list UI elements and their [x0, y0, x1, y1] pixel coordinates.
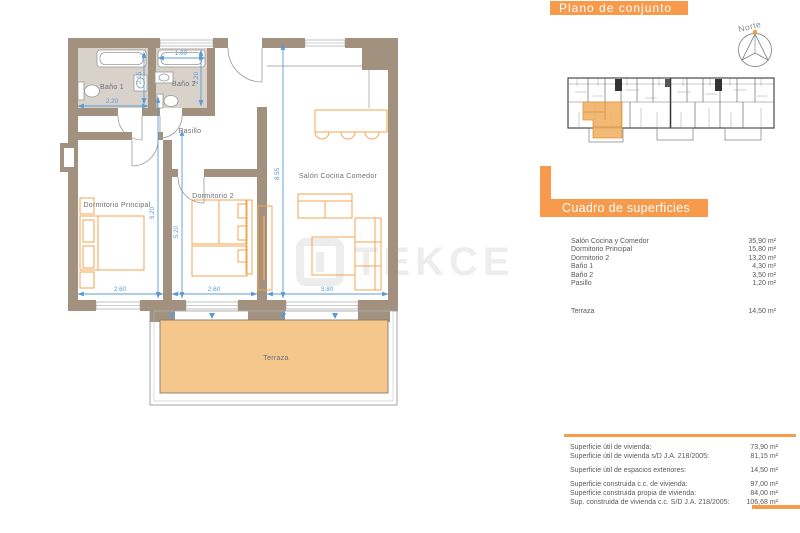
row-value: 97,00 m²: [750, 480, 778, 489]
totals-row: Sup. construida de vivienda c.c. S/D J.A…: [570, 498, 778, 507]
totals-bottom-rule: [752, 505, 800, 509]
terraza-row: Terraza 14,50 m²: [571, 308, 776, 316]
dim-salon-width: 3.80: [321, 286, 334, 293]
row-label: Dormitorio 2: [571, 255, 609, 263]
row-label: Sup. construida de vivienda c.c. S/D J.A…: [570, 498, 730, 507]
surface-table: Salón Cocina y Comedor 35,90 m² Dormitor…: [571, 238, 776, 288]
north-compass: Norte: [722, 14, 786, 72]
table-row: Pasillo 1,20 m²: [571, 280, 776, 288]
nightstand: [80, 272, 94, 288]
north-dot-icon: [753, 30, 757, 34]
totals-row: Superficie construida propia de vivienda…: [570, 489, 778, 498]
overview-plan: [565, 72, 777, 150]
room-label-pasillo: Pasillo: [179, 128, 202, 135]
row-label: Superficie construida c.c. de vivienda:: [570, 480, 688, 489]
row-value: 15,80 m²: [748, 246, 776, 254]
row-label: Superficie útil de vivienda:: [570, 443, 651, 452]
chaise-sofa: [355, 218, 381, 290]
kitchen-counter: [267, 66, 369, 108]
row-label: Superficie construida propia de vivienda…: [570, 489, 696, 498]
dim-d2-height: 5.20: [173, 225, 180, 238]
row-value: 3,50 m²: [752, 272, 776, 280]
totals-row: Superficie útil de vivienda: 73,90 m²: [570, 443, 778, 452]
wall-niche: [64, 148, 74, 167]
table-row: Salón Cocina y Comedor 35,90 m²: [571, 238, 776, 246]
stool: [341, 132, 355, 139]
dim-bano1-width: 2.20: [106, 98, 119, 105]
row-value: 14,50 m²: [750, 466, 778, 475]
room-label-bano2: Baño 2: [172, 81, 196, 88]
row-value: 81,15 m²: [750, 452, 778, 461]
cuadro-de-superficies-header: Cuadro de superficies: [551, 199, 708, 217]
north-label: Norte: [737, 19, 762, 34]
room-label-dormitorio-principal: Dormitorio Principal: [83, 202, 150, 209]
row-label: Baño 2: [571, 272, 593, 280]
row-label: Superficie útil de espacios exteriores:: [570, 466, 686, 475]
table-row: Dormitorio 2 13,20 m²: [571, 255, 776, 263]
row-label: Salón Cocina y Comedor: [571, 238, 649, 246]
totals-row: Superficie construida c.c. de vivienda: …: [570, 480, 778, 489]
floor-plan: 2.20 1.60 2.60 2.60 3.80 2.15 2.20 6.20 …: [0, 0, 540, 533]
stool: [315, 132, 329, 139]
plano-de-conjunto-header: Plano de conjunto: [550, 1, 688, 15]
row-value: 73,90 m²: [750, 443, 778, 452]
toilet-1: [78, 82, 84, 100]
row-value: 1,20 m²: [752, 280, 776, 288]
table-row: Dormitorio Principal 15,80 m²: [571, 246, 776, 254]
dim-bano1-height: 2.15: [136, 71, 143, 84]
double-bed: [80, 216, 144, 270]
row-label: Pasillo: [571, 280, 592, 288]
table-row: Baño 1 4,30 m²: [571, 263, 776, 271]
accent-l-bar: [540, 166, 551, 217]
dim-d2-width: 2.60: [208, 286, 221, 293]
row-value: 84,00 m²: [750, 489, 778, 498]
totals-section: Superficie útil de vivienda: 73,90 m² Su…: [570, 443, 778, 512]
coffee-table: [312, 237, 355, 275]
floorplan-sheet: TEKCE: [0, 0, 800, 533]
room-label-terraza: Terraza: [263, 355, 288, 362]
room-label-bano1: Baño 1: [100, 84, 124, 91]
row-value: 35,90 m²: [748, 238, 776, 246]
kitchen-island: [315, 110, 387, 132]
row-value: 13,20 m²: [748, 255, 776, 263]
row-label: Superficie útil de vivienda s/D J.A. 218…: [570, 452, 709, 461]
dim-dp-width: 2.60: [114, 286, 127, 293]
row-label: Terraza: [571, 308, 594, 316]
table-row: Baño 2 3,50 m²: [571, 272, 776, 280]
row-value: 14,50 m²: [748, 308, 776, 316]
stool: [365, 132, 379, 139]
totals-top-rule: [564, 434, 796, 437]
totals-row: Superficie útil de vivienda s/D J.A. 218…: [570, 452, 778, 461]
row-label: Dormitorio Principal: [571, 246, 632, 254]
dim-bano2-width: 1.60: [175, 50, 188, 57]
totals-row: Superficie útil de espacios exteriores: …: [570, 466, 778, 475]
room-label-dormitorio2: Dormitorio 2: [192, 193, 234, 200]
room-label-salon: Salón Cocina Comedor: [299, 173, 378, 180]
row-value: 4,30 m²: [752, 263, 776, 271]
row-label: Baño 1: [571, 263, 593, 271]
dim-salon-height: 8.55: [274, 167, 281, 180]
